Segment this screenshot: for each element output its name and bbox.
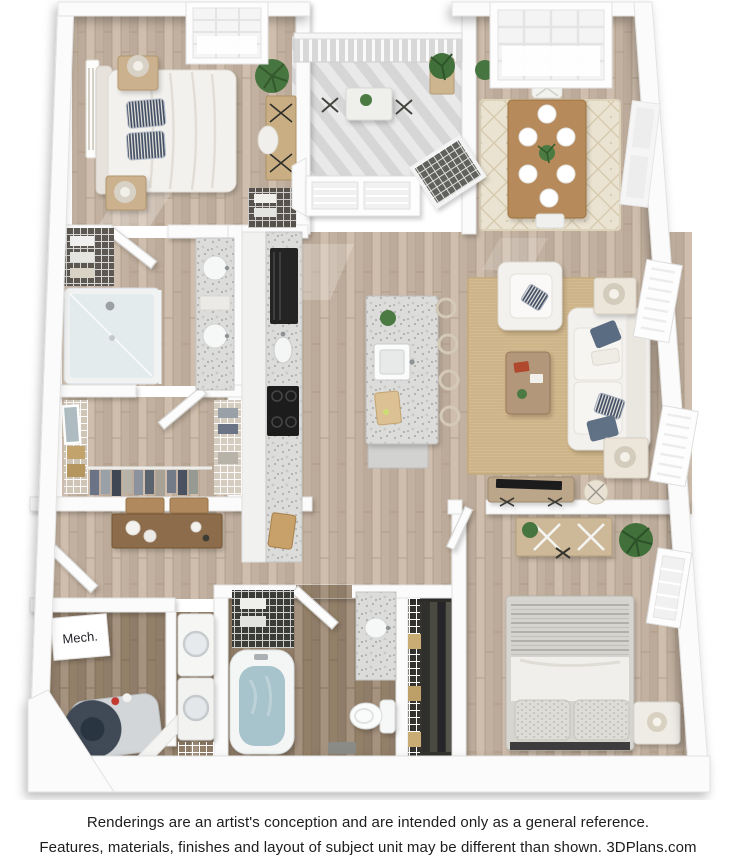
footboard [510,742,630,750]
towel [200,296,230,310]
closet2-basket [408,686,421,701]
outer-wall-bottom [28,756,710,792]
bedroom1-closet [248,188,296,228]
screenshot-canvas: Mech. [0,0,736,859]
kitchen-sink [274,337,292,363]
place-setting [519,165,537,183]
place-setting [557,128,575,146]
vanity-sink [365,618,387,638]
bed [96,66,236,194]
laundry-wire-shelf [178,742,214,756]
place-setting [538,105,556,123]
pillow [126,98,166,128]
place-setting [557,165,575,183]
island-board [374,391,401,425]
dining-room [508,78,586,228]
end-table-bottom [604,438,648,478]
pillow [574,700,629,740]
table-plant [360,94,372,106]
shower-head [106,302,115,311]
dining-chair-bottom [536,214,564,228]
end-table-top [594,278,636,314]
island-faucet [409,359,414,364]
plant-bedroom2 [619,523,653,557]
coffee-table [506,352,550,414]
cutting-board [268,512,296,549]
railing-top-rail [294,33,462,39]
bedroom1-window [186,2,268,64]
place-setting [540,189,558,207]
vanity-sink [203,324,227,348]
bath1-vanity [196,238,234,390]
faucet [281,332,286,337]
island-plant [380,310,396,326]
console-table [112,514,222,548]
bath1-linen-closet [62,228,114,286]
place-setting [519,128,537,146]
laundry [178,614,214,756]
closet2-basket [408,634,421,649]
hanging-clothes [86,468,212,496]
closet2-clothes [422,602,451,752]
armchair [498,262,562,330]
disclaimer-line-1: Renderings are an artist's conception an… [0,810,736,835]
vanity-sink [203,256,227,280]
outer-wall-top-left [58,2,310,16]
nightstand-top [118,55,158,90]
closet2-basket [408,732,421,747]
cabinet-run [242,232,268,562]
desk-chair [258,126,278,154]
media-console [488,477,574,506]
pillow [515,700,570,740]
tub-water [239,666,285,746]
interior-wall [462,14,476,234]
interior-wall [396,598,408,756]
bay-side-wall [292,158,306,216]
mech-room-label: Mech. [62,628,99,646]
bath2-vanity [356,592,396,680]
tub-faucet [254,654,268,660]
wall-shelf [126,498,164,513]
desk-plant [522,522,538,538]
mech-sign: Mech. [50,614,109,661]
shower-drain [109,335,115,341]
comforter [511,601,629,657]
disclaimer-line-2: Features, materials, finishes and layout… [0,835,736,859]
interior-wall [58,385,136,397]
pillow [126,131,166,161]
wall-shelf [170,498,208,513]
bath-mat [328,742,356,754]
desk-bedroom2 [516,518,612,558]
cooktop [267,386,299,436]
dining-table [508,100,586,218]
pouf [584,480,608,504]
nightstand-bedroom2 [634,702,680,744]
bathtub [230,650,294,754]
disclaimer: Renderings are an artist's conception an… [0,810,736,859]
nightstand-bottom [106,176,146,210]
interior-wall [448,500,462,514]
floor-plan-rendering: Mech. [0,0,736,800]
bed-bedroom2 [506,596,634,750]
bath2-linen-closet [232,590,294,648]
interior-wall [214,598,228,758]
shower [64,288,160,384]
mirror [63,405,81,443]
dining-window [490,2,612,88]
closet-shelf-right [214,400,242,495]
